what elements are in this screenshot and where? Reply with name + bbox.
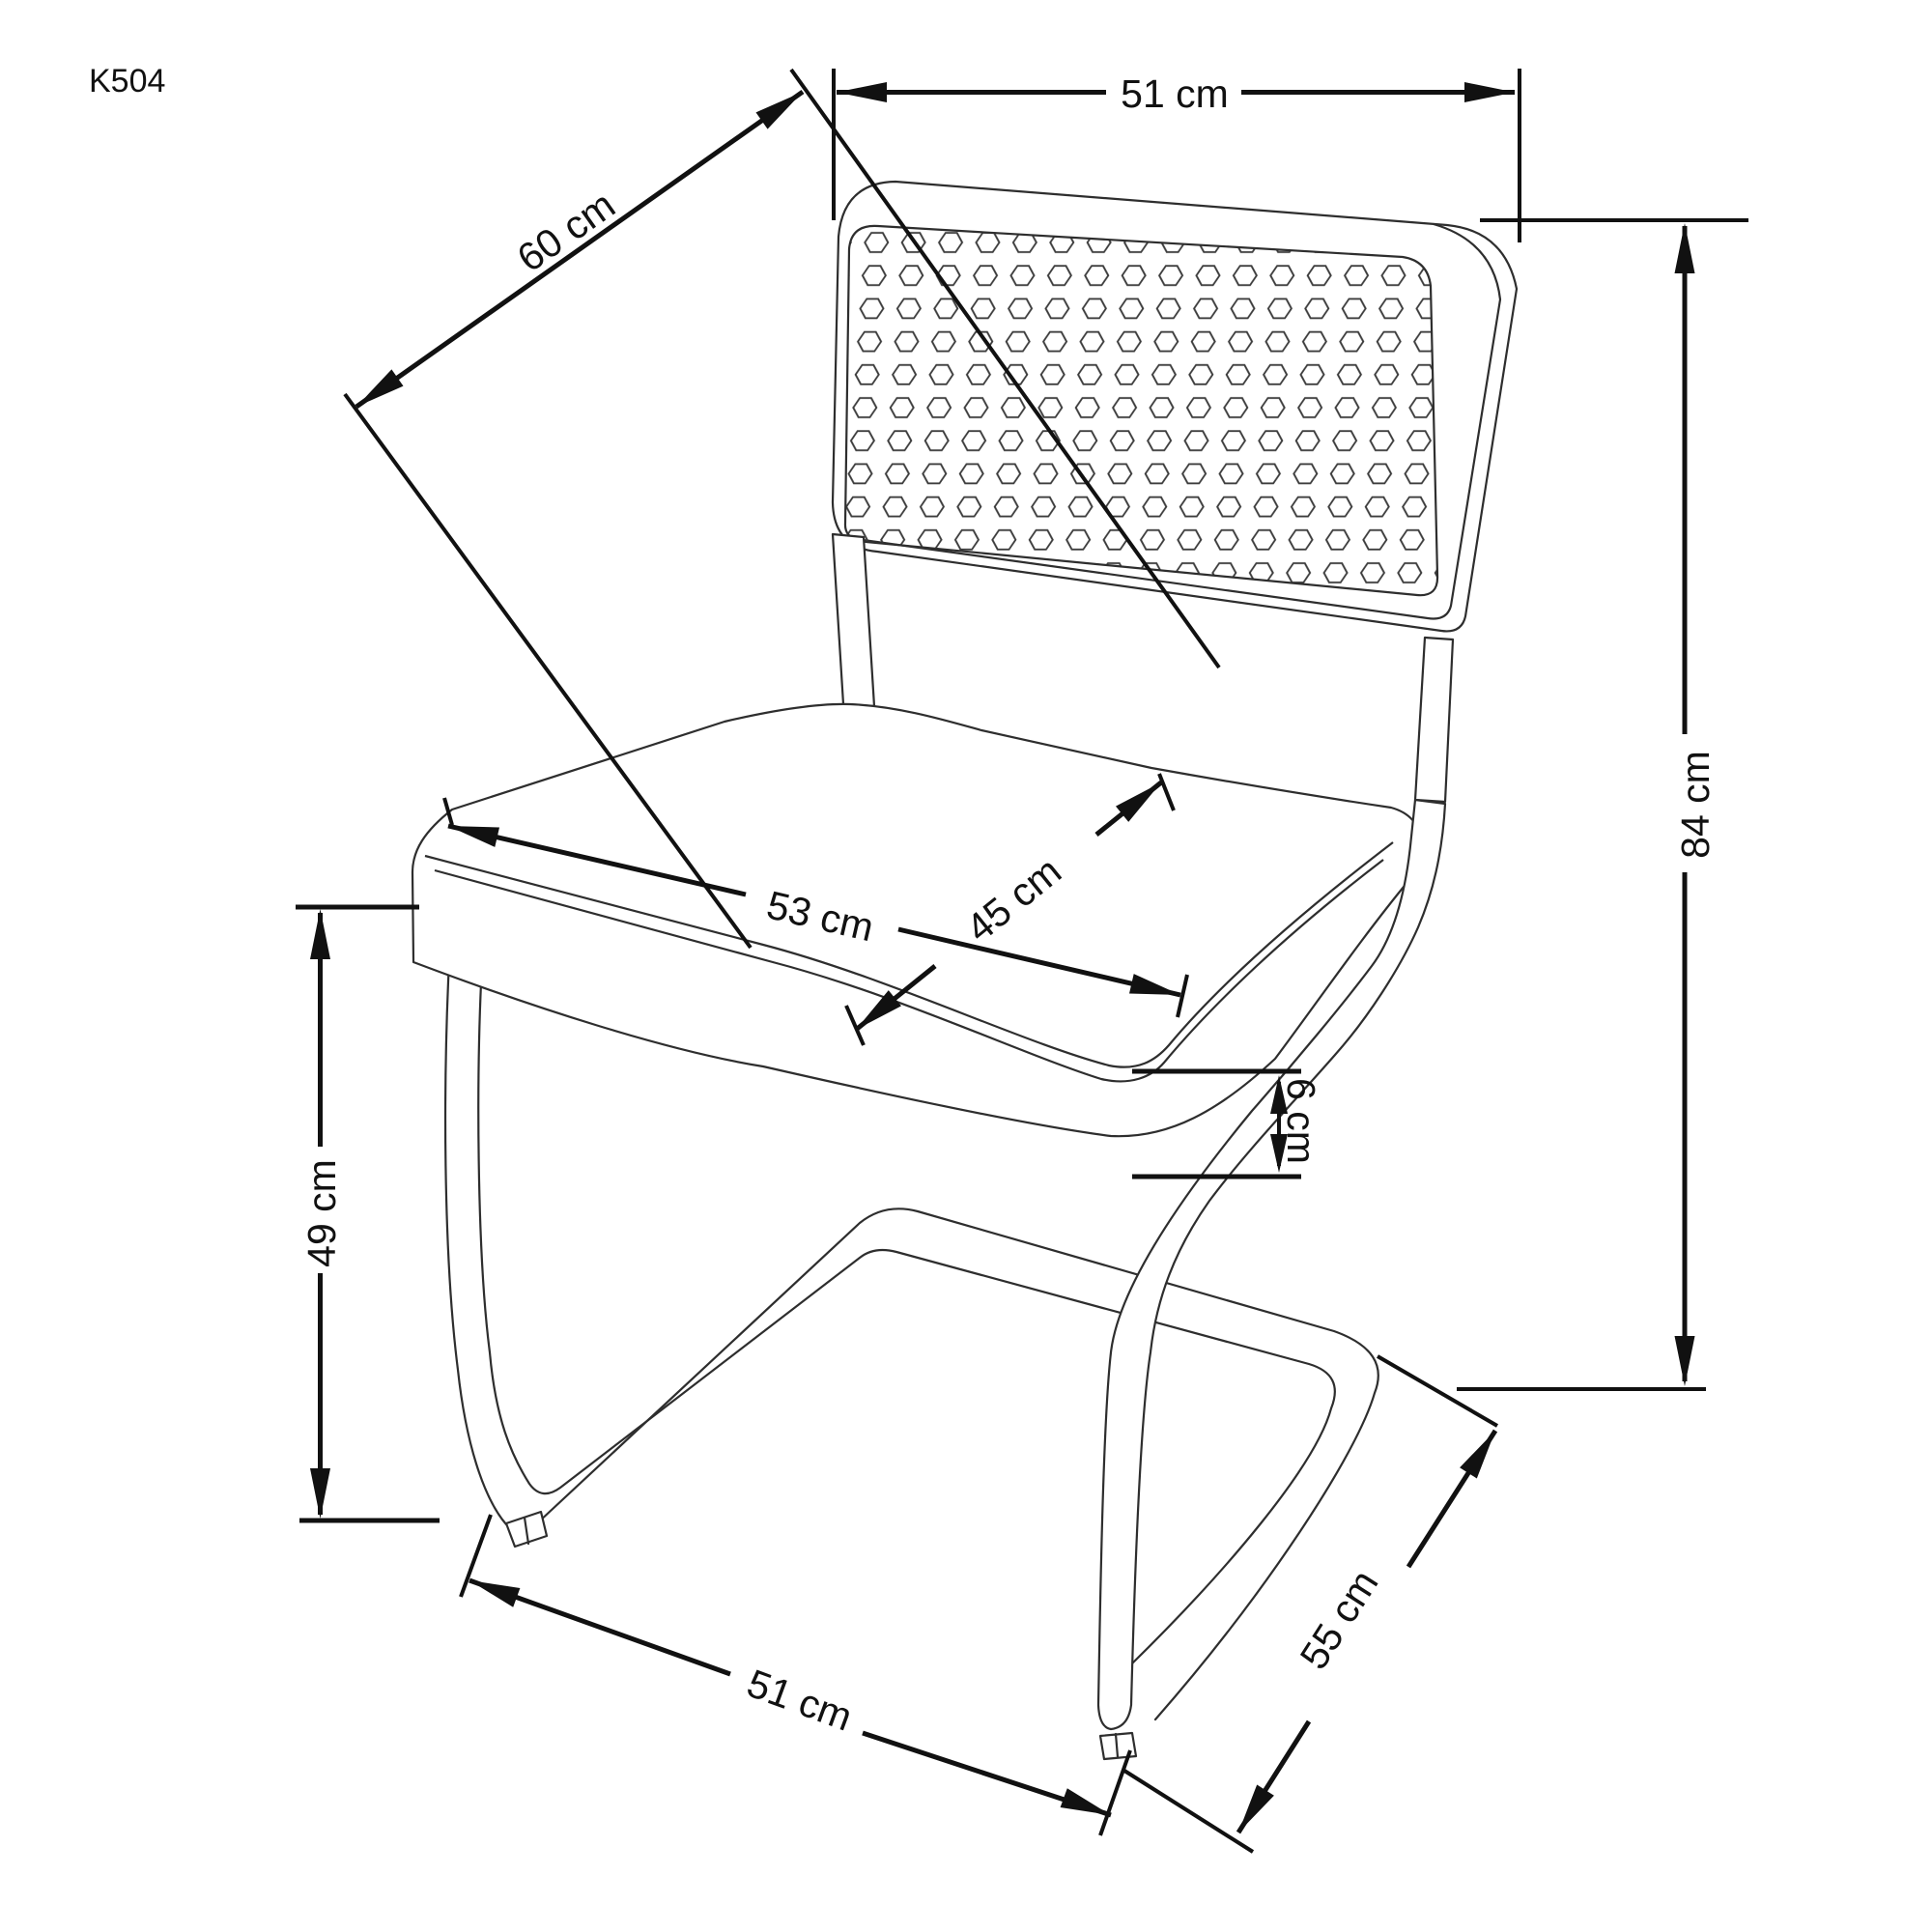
svg-text:K504: K504: [89, 63, 165, 99]
svg-text:51 cm: 51 cm: [1121, 71, 1229, 116]
svg-text:6 cm: 6 cm: [1279, 1078, 1323, 1164]
svg-text:49 cm: 49 cm: [299, 1159, 344, 1267]
svg-text:84 cm: 84 cm: [1673, 751, 1718, 859]
